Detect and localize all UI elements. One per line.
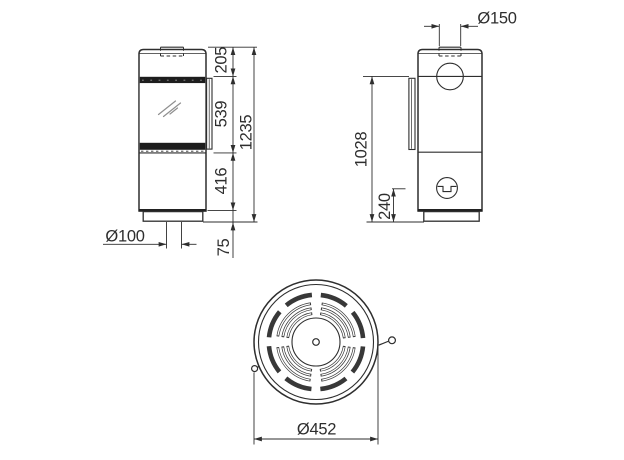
damper-control-knob <box>252 366 259 372</box>
stove-dimension-drawing: 205 539 416 75 1235 Ø100 <box>0 0 624 460</box>
front-glass-window <box>140 83 205 143</box>
door-handle-knob <box>379 337 396 345</box>
dim-label-o150: Ø150 <box>477 10 516 28</box>
dim-label-240: 240 <box>376 193 394 220</box>
top-view <box>252 280 396 404</box>
dim-label-1028: 1028 <box>353 132 371 168</box>
side-view <box>409 47 482 221</box>
front-upper-vent-band <box>140 77 205 83</box>
front-flue-collar <box>161 47 184 56</box>
side-base-plinth <box>424 212 479 222</box>
dim-label-o452: Ø452 <box>297 421 336 439</box>
dim-label-o100: Ø100 <box>105 228 144 246</box>
front-base-plinth <box>143 212 203 222</box>
side-door-edge-strip <box>409 78 415 149</box>
dim-label-416: 416 <box>213 168 231 195</box>
side-body-outline <box>418 50 482 212</box>
dim-label-1235: 1235 <box>238 115 256 151</box>
side-flue-collar <box>439 47 461 56</box>
dim-label-75: 75 <box>215 239 233 257</box>
technical-drawing-page: 205 539 416 75 1235 Ø100 <box>0 0 624 460</box>
front-lower-vent-band <box>140 143 205 150</box>
front-view <box>139 47 212 221</box>
dim-label-539: 539 <box>213 101 231 128</box>
top-center-pin <box>313 339 320 346</box>
door-hinge-strip <box>207 78 212 149</box>
dim-label-205: 205 <box>213 47 231 74</box>
side-dimensions: Ø150 1028 240 <box>353 10 517 223</box>
rear-air-inlet <box>437 178 458 199</box>
